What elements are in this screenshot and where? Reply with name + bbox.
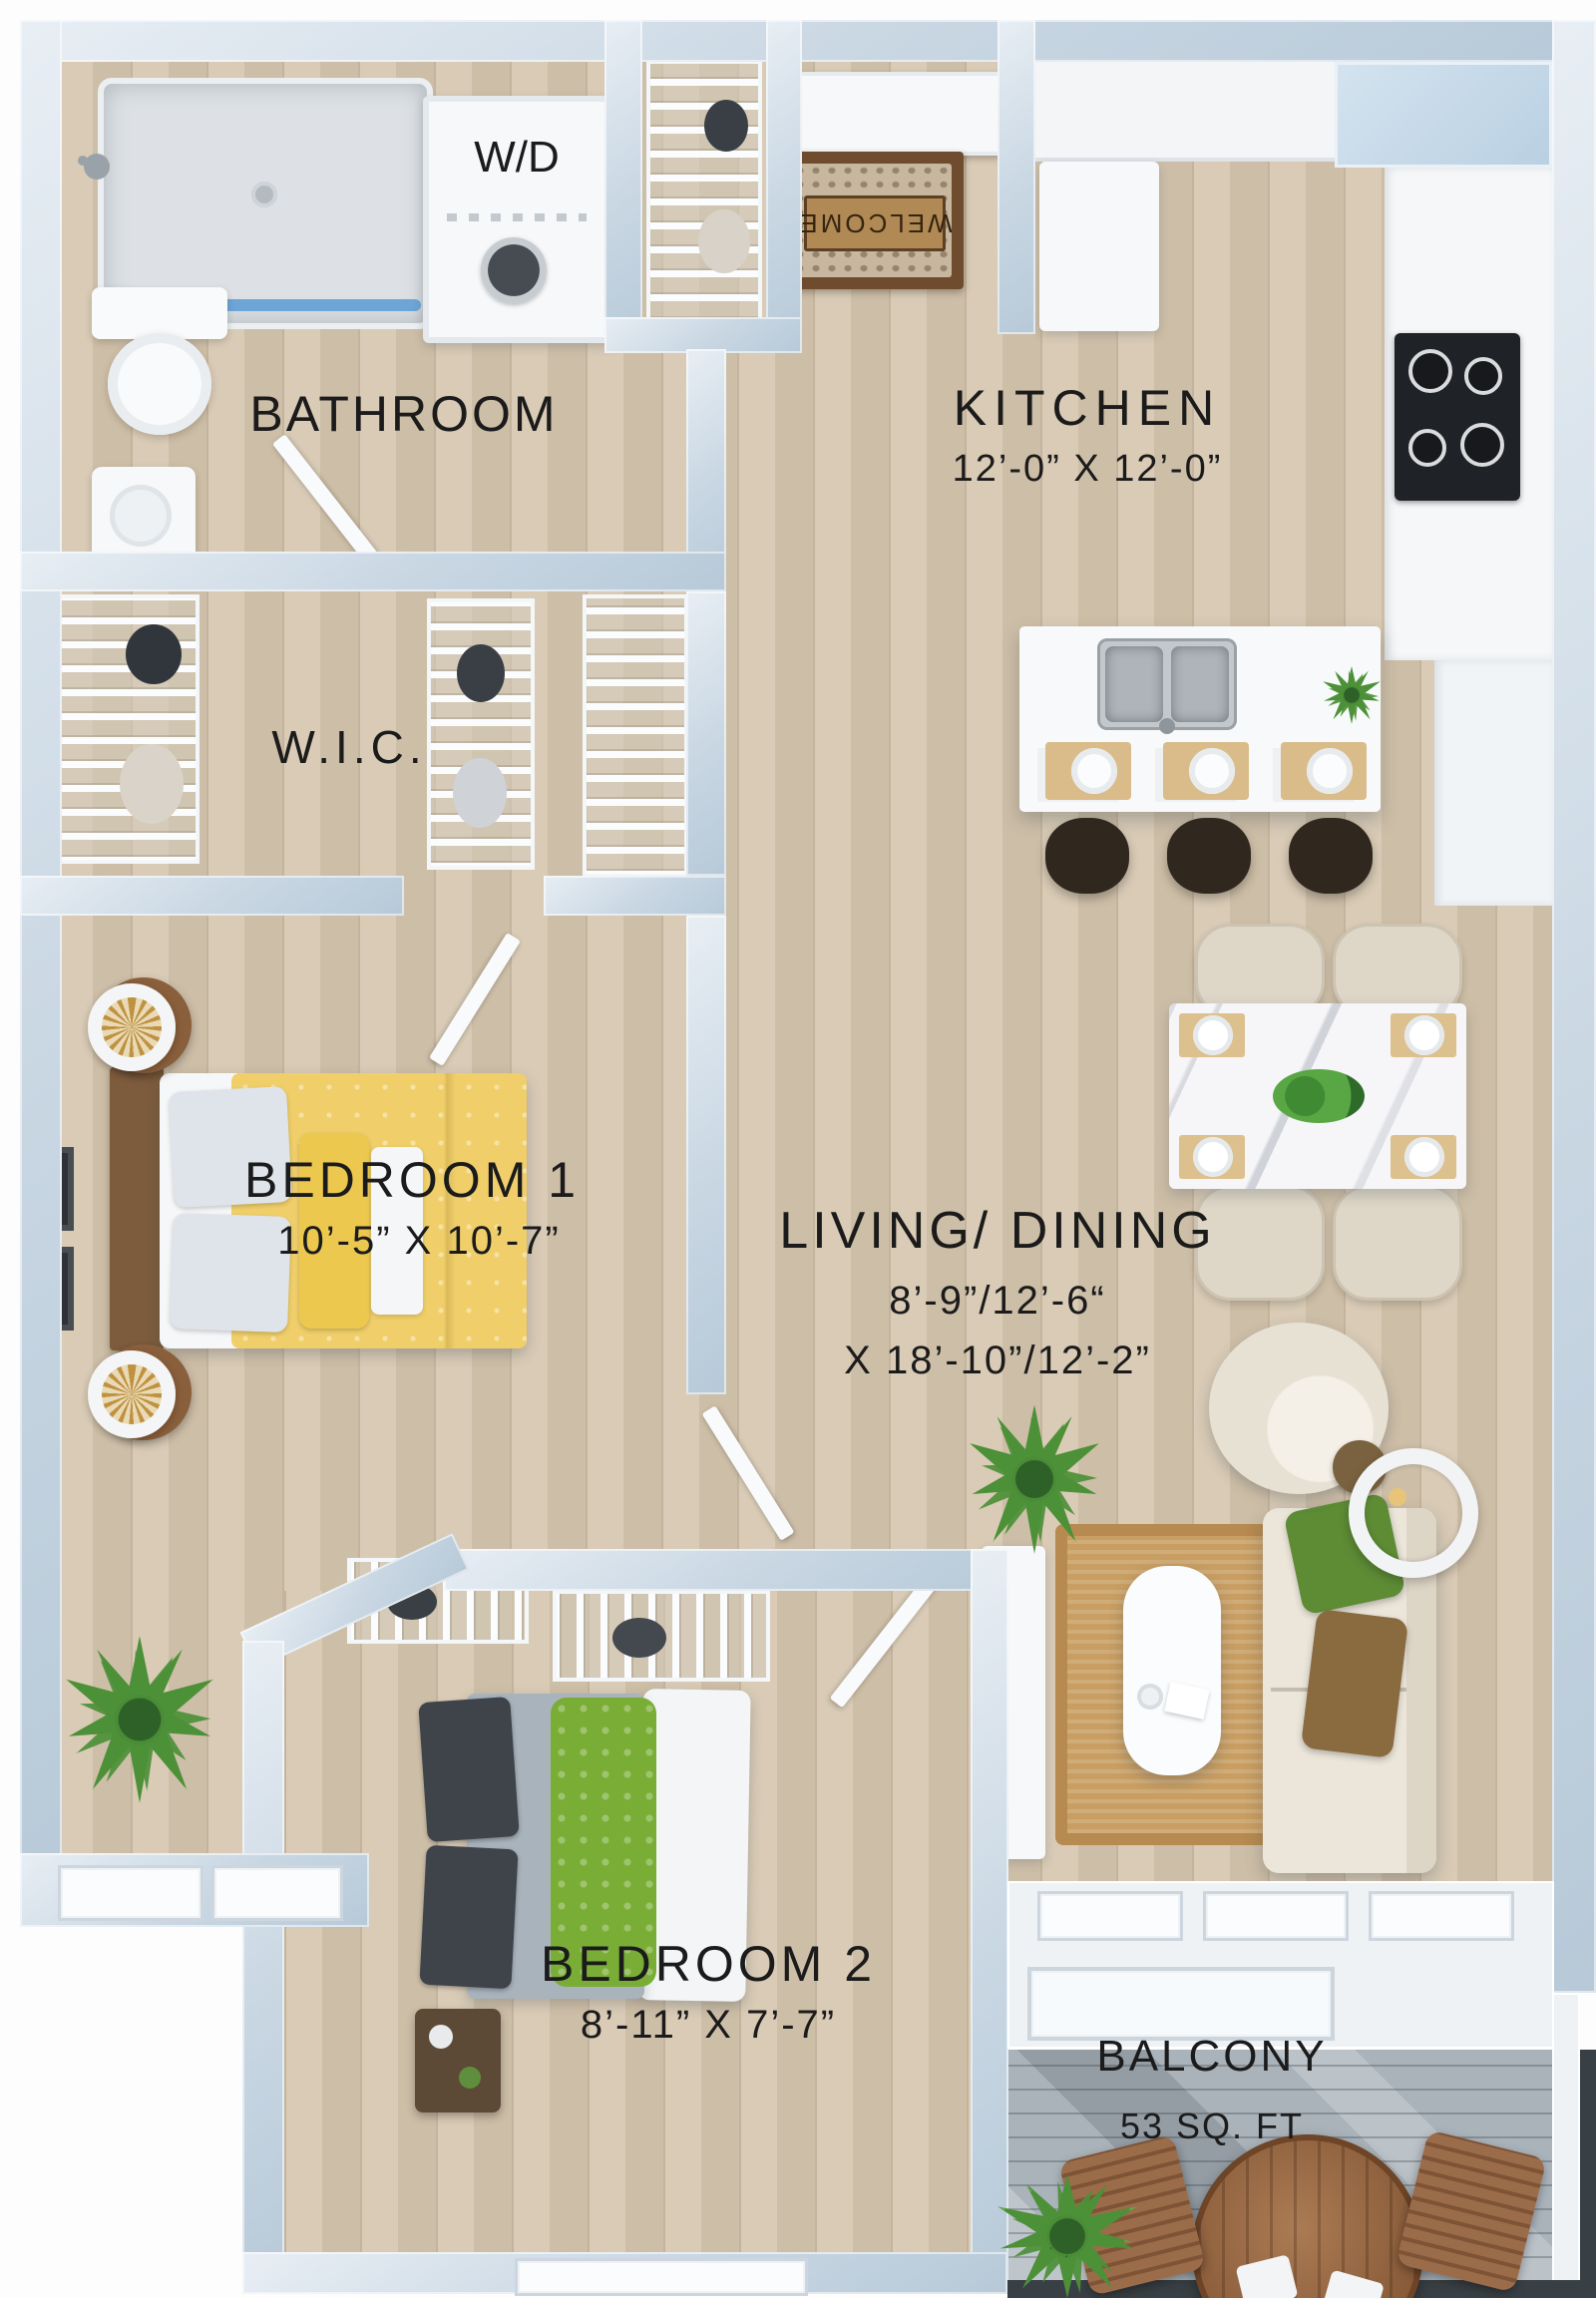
bar-stool bbox=[1045, 818, 1129, 894]
wall-outer-top bbox=[20, 20, 1596, 62]
nightstand-item bbox=[459, 2067, 481, 2089]
bedroom2-nightstand bbox=[415, 2009, 501, 2112]
bedroom1-window bbox=[58, 1865, 203, 1921]
nightstand-item bbox=[429, 2025, 453, 2049]
closet-clothes bbox=[120, 744, 184, 824]
table-centerpiece-greenery bbox=[1273, 1069, 1365, 1123]
wall-wic-bedroom1-b bbox=[544, 876, 726, 916]
closet-clothes bbox=[453, 758, 507, 828]
bar-stool bbox=[1167, 818, 1251, 894]
wall-outer-right bbox=[1552, 20, 1596, 1993]
living-window bbox=[1203, 1891, 1349, 1941]
plate bbox=[1307, 748, 1353, 794]
floor-lamp-ring bbox=[1349, 1448, 1478, 1578]
bedroom2-window bbox=[515, 2258, 808, 2296]
welcome-mat: WELCOME bbox=[780, 152, 964, 289]
wic-label: W.I.C. bbox=[254, 722, 444, 773]
dining-table bbox=[1169, 1003, 1466, 1189]
cooktop-burner bbox=[1464, 357, 1502, 395]
laundry-label: W/D bbox=[429, 134, 604, 182]
plate bbox=[1189, 748, 1235, 794]
cooktop bbox=[1395, 333, 1520, 501]
balcony-plant bbox=[997, 2174, 1137, 2298]
bedroom1-window bbox=[211, 1865, 343, 1921]
bed2-pillow bbox=[419, 1845, 518, 1990]
entry-door-panel bbox=[794, 72, 1009, 156]
toilet-tank bbox=[92, 287, 227, 339]
welcome-mat-plate: WELCOME bbox=[804, 195, 946, 251]
washer-controls bbox=[447, 213, 587, 221]
wall-closet-entry bbox=[766, 20, 802, 349]
bathtub-drain bbox=[251, 182, 277, 207]
kitchen-label: KITCHEN bbox=[928, 381, 1247, 436]
bedroom1-label: BEDROOM 1 bbox=[244, 1153, 574, 1208]
place-setting bbox=[1281, 742, 1367, 800]
wall-closet-bottom bbox=[604, 317, 802, 353]
bathroom-label: BATHROOM bbox=[239, 387, 569, 442]
dinner-plate bbox=[1404, 1015, 1444, 1055]
bed2-pillow bbox=[418, 1697, 520, 1842]
balcony-railing-right bbox=[1580, 2050, 1596, 2298]
living-dining-dims-2: X 18’-10”/12’-2” bbox=[778, 1339, 1217, 1382]
bedroom2-label: BEDROOM 2 bbox=[529, 1937, 888, 1992]
double-sink bbox=[1097, 638, 1237, 730]
wall-wic-bedroom1-a bbox=[20, 876, 404, 916]
table-lamp bbox=[88, 983, 176, 1071]
closet-clothes bbox=[126, 624, 182, 684]
wall-bedroom1-right bbox=[686, 916, 726, 1394]
toilet-bowl bbox=[108, 333, 211, 435]
washer-door bbox=[481, 237, 547, 303]
wall-bathroom-wic bbox=[20, 552, 726, 591]
kitchen-peninsula-wall bbox=[1434, 660, 1552, 906]
place-setting bbox=[1045, 742, 1131, 800]
living-window bbox=[1369, 1891, 1514, 1941]
floor-lamp-bulb bbox=[1389, 1488, 1406, 1506]
island-plant bbox=[1323, 666, 1381, 724]
coffee-table bbox=[1123, 1566, 1221, 1775]
cooktop-burner bbox=[1408, 429, 1446, 467]
living-dining-dims-1: 8’-9”/12’-6“ bbox=[798, 1279, 1197, 1323]
sink-basin bbox=[1105, 646, 1163, 722]
wic-shelving-left bbox=[56, 594, 199, 864]
wic-shelving-right bbox=[583, 594, 688, 878]
balcony-sliding-door bbox=[1027, 1967, 1335, 2041]
napkin bbox=[1321, 2269, 1385, 2298]
refrigerator bbox=[1039, 162, 1159, 331]
kitchen-corner-counter bbox=[1335, 62, 1552, 168]
balcony-area: 53 SQ. FT bbox=[1082, 2106, 1342, 2146]
wall-bedroom2-left bbox=[242, 1641, 284, 2294]
living-dining-label: LIVING/ DINING bbox=[768, 1203, 1227, 1260]
wall-bedroom2-top bbox=[444, 1549, 1007, 1591]
wall-bathroom-closet bbox=[604, 20, 642, 349]
floorplan-render: WELCOME bbox=[0, 0, 1596, 2298]
coffee-cup bbox=[1137, 1684, 1163, 1710]
closet-clothes bbox=[698, 209, 750, 273]
bathroom-sink-basin bbox=[110, 485, 172, 547]
napkin bbox=[1235, 2254, 1298, 2298]
cooktop-burner bbox=[1408, 349, 1452, 393]
bed1-headboard bbox=[110, 1067, 164, 1350]
closet-clothes bbox=[704, 100, 748, 152]
bar-stool bbox=[1289, 818, 1373, 894]
dining-chair bbox=[1333, 1185, 1462, 1301]
bedroom2-dims: 8’-11” X 7’-7” bbox=[549, 2003, 868, 2047]
dinner-plate bbox=[1193, 1015, 1233, 1055]
shower-head-icon bbox=[84, 154, 110, 180]
balcony-label: BALCONY bbox=[1067, 2033, 1357, 2081]
bedroom1-plant bbox=[66, 1636, 213, 1803]
sink-faucet bbox=[1159, 718, 1175, 734]
dinner-plate bbox=[1193, 1137, 1233, 1177]
bedroom1-dims: 10’-5” X 10’-7” bbox=[254, 1219, 584, 1263]
bedroom2-closet-shelf bbox=[553, 1590, 770, 1682]
welcome-mat-text: WELCOME bbox=[797, 209, 952, 238]
wall-outer-left bbox=[20, 20, 62, 1927]
closet-clothes bbox=[612, 1618, 666, 1658]
wall-balcony-right bbox=[1552, 1993, 1580, 2282]
magazine bbox=[1164, 1682, 1209, 1720]
living-room-plant bbox=[970, 1404, 1099, 1554]
place-setting bbox=[1163, 742, 1249, 800]
wall-entry-kitchen bbox=[997, 20, 1035, 334]
kitchen-upper-cabinets bbox=[1035, 62, 1335, 162]
wall-wic-right bbox=[686, 591, 726, 876]
cooktop-burner bbox=[1460, 423, 1504, 467]
table-lamp bbox=[88, 1350, 176, 1438]
kitchen-dims: 12’-0” X 12’-0” bbox=[903, 449, 1272, 491]
entry-closet-shelving bbox=[646, 60, 762, 325]
plate bbox=[1071, 748, 1117, 794]
dinner-plate bbox=[1404, 1137, 1444, 1177]
closet-clothes bbox=[457, 644, 505, 702]
sink-basin bbox=[1171, 646, 1229, 722]
living-window bbox=[1037, 1891, 1183, 1941]
brown-throw-pillow bbox=[1301, 1609, 1408, 1758]
